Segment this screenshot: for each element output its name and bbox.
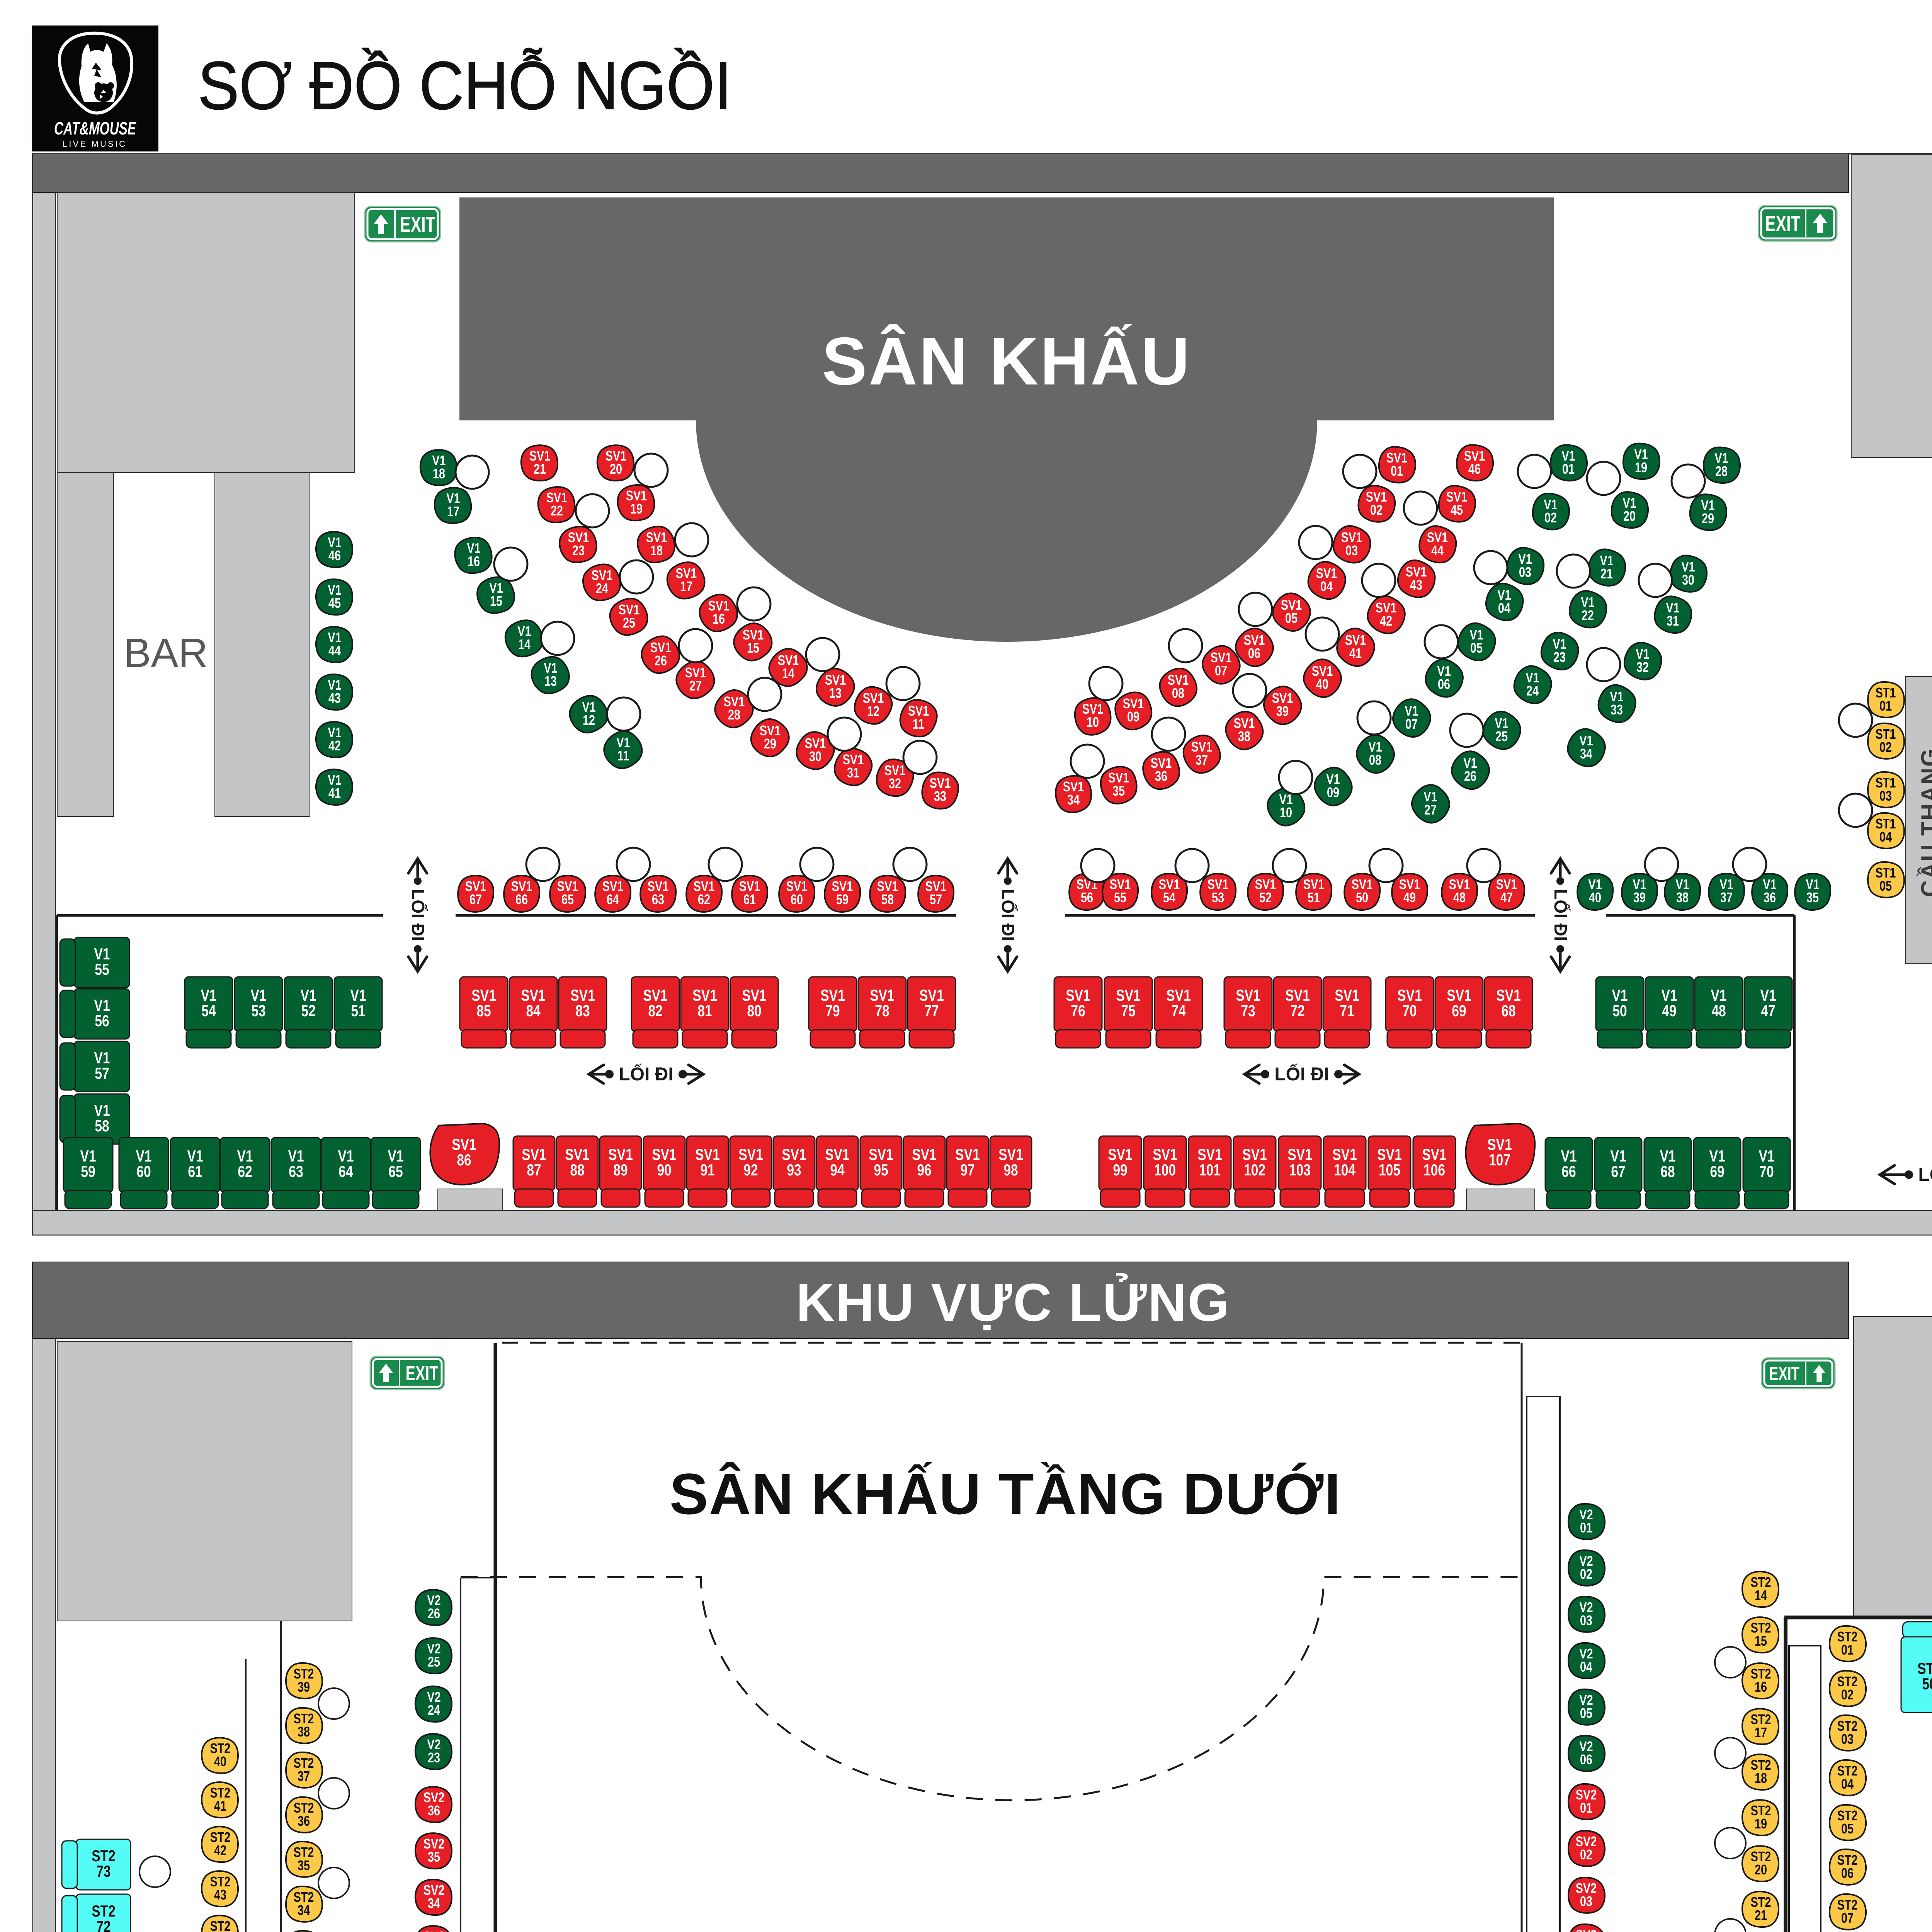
svg-text:V104: V104 — [1497, 587, 1511, 616]
svg-text:V147: V147 — [1760, 987, 1776, 1020]
svg-text:CẦU THANG: CẦU THANG — [1917, 748, 1932, 897]
svg-text:V155: V155 — [94, 946, 110, 979]
svg-text:V202: V202 — [1579, 1553, 1593, 1582]
svg-text:CAT&MOUSE: CAT&MOUSE — [54, 118, 136, 138]
svg-text:V144: V144 — [328, 629, 341, 658]
svg-text:SV1104: SV1104 — [1332, 1146, 1357, 1179]
svg-text:V157: V157 — [94, 1049, 110, 1083]
svg-text:V139: V139 — [1633, 876, 1646, 905]
svg-text:V223: V223 — [427, 1736, 440, 1765]
svg-text:ST244: ST244 — [210, 1918, 231, 1932]
svg-text:V160: V160 — [136, 1148, 151, 1181]
svg-text:SÂN KHẤU: SÂN KHẤU — [822, 324, 1191, 399]
svg-text:V134: V134 — [1579, 733, 1593, 762]
svg-text:V106: V106 — [1437, 663, 1451, 692]
svg-text:V137: V137 — [1719, 876, 1733, 905]
svg-text:SV1107: SV1107 — [1487, 1136, 1512, 1169]
svg-text:V141: V141 — [328, 772, 341, 801]
svg-text:V129: V129 — [1701, 497, 1714, 526]
svg-text:SV233: SV233 — [423, 1929, 444, 1932]
svg-text:V159: V159 — [80, 1148, 96, 1181]
svg-text:V103: V103 — [1518, 551, 1532, 580]
svg-text:V203: V203 — [1579, 1599, 1593, 1628]
svg-text:SV1105: SV1105 — [1377, 1146, 1401, 1179]
svg-text:V201: V201 — [1579, 1507, 1593, 1536]
svg-text:LIVE MUSIC: LIVE MUSIC — [63, 139, 129, 149]
svg-text:V145: V145 — [328, 582, 341, 611]
svg-text:V158: V158 — [94, 1102, 110, 1135]
svg-text:SV1102: SV1102 — [1242, 1146, 1267, 1179]
svg-text:V164: V164 — [338, 1148, 354, 1181]
svg-text:SV1106: SV1106 — [1422, 1146, 1446, 1179]
svg-text:EXIT: EXIT — [406, 1362, 439, 1385]
svg-text:V115: V115 — [489, 580, 503, 609]
svg-text:V133: V133 — [1610, 689, 1623, 718]
svg-text:V108: V108 — [1368, 739, 1382, 768]
svg-text:V130: V130 — [1681, 559, 1695, 588]
svg-text:V111: V111 — [616, 735, 630, 764]
svg-text:V125: V125 — [1495, 715, 1508, 744]
svg-text:V105: V105 — [1469, 627, 1483, 656]
svg-text:KHU VỰC LỬNG: KHU VỰC LỬNG — [796, 1273, 1230, 1332]
svg-text:V132: V132 — [1636, 646, 1649, 675]
svg-text:V143: V143 — [328, 677, 341, 706]
svg-text:V151: V151 — [350, 987, 366, 1020]
svg-text:V116: V116 — [467, 540, 480, 569]
svg-text:SV1103: SV1103 — [1287, 1146, 1312, 1179]
svg-text:V122: V122 — [1581, 594, 1594, 623]
svg-text:V154: V154 — [201, 987, 216, 1020]
svg-text:V224: V224 — [427, 1689, 440, 1718]
svg-text:LỐI ĐI: LỐI ĐI — [408, 889, 428, 941]
svg-text:V135: V135 — [1806, 876, 1819, 905]
svg-text:SV1101: SV1101 — [1197, 1146, 1222, 1179]
svg-text:LỐI ĐI: LỐI ĐI — [1918, 1164, 1932, 1185]
svg-text:SV1100: SV1100 — [1153, 1146, 1177, 1179]
svg-text:SÂN KHẤU TẦNG DƯỚI: SÂN KHẤU TẦNG DƯỚI — [670, 1461, 1341, 1526]
svg-text:V113: V113 — [544, 660, 557, 689]
svg-text:V123: V123 — [1553, 636, 1566, 665]
svg-text:V165: V165 — [388, 1148, 403, 1181]
svg-text:V131: V131 — [1666, 600, 1679, 629]
svg-text:V114: V114 — [517, 623, 531, 652]
svg-text:SƠ ĐỒ CHỖ NGỒI: SƠ ĐỒ CHỖ NGỒI — [198, 48, 732, 124]
svg-text:LỐI ĐI: LỐI ĐI — [998, 889, 1018, 941]
svg-text:EXIT: EXIT — [400, 212, 435, 237]
svg-text:V119: V119 — [1634, 446, 1648, 475]
svg-text:V138: V138 — [1675, 876, 1689, 905]
svg-text:LỐI ĐI: LỐI ĐI — [619, 1063, 673, 1085]
svg-text:V225: V225 — [427, 1641, 440, 1670]
svg-text:V162: V162 — [237, 1148, 253, 1181]
svg-text:V127: V127 — [1423, 789, 1437, 818]
svg-text:V148: V148 — [1711, 987, 1726, 1020]
svg-text:V126: V126 — [1463, 755, 1477, 784]
svg-text:LỐI ĐI: LỐI ĐI — [1551, 889, 1571, 941]
svg-text:V163: V163 — [288, 1148, 304, 1181]
svg-text:LỐI ĐI: LỐI ĐI — [1274, 1063, 1329, 1085]
svg-text:V169: V169 — [1709, 1148, 1725, 1181]
svg-text:V128: V128 — [1714, 450, 1728, 479]
svg-text:V109: V109 — [1326, 771, 1340, 800]
svg-text:V156: V156 — [94, 997, 110, 1030]
svg-text:EXIT: EXIT — [1765, 211, 1800, 236]
svg-text:V167: V167 — [1610, 1148, 1626, 1181]
svg-text:V118: V118 — [432, 452, 446, 481]
svg-text:V149: V149 — [1661, 987, 1677, 1020]
svg-text:V152: V152 — [300, 987, 316, 1020]
svg-text:V107: V107 — [1405, 703, 1418, 732]
svg-text:SV204: SV204 — [1576, 1927, 1597, 1932]
svg-text:V204: V204 — [1579, 1646, 1593, 1675]
svg-text:V121: V121 — [1600, 553, 1613, 582]
svg-text:V205: V205 — [1579, 1692, 1593, 1721]
svg-text:V206: V206 — [1579, 1738, 1593, 1767]
svg-text:V161: V161 — [187, 1148, 203, 1181]
svg-text:V168: V168 — [1660, 1148, 1675, 1181]
svg-text:V142: V142 — [328, 724, 341, 753]
svg-text:V146: V146 — [328, 534, 341, 563]
svg-text:V117: V117 — [446, 490, 460, 519]
svg-text:V124: V124 — [1526, 670, 1539, 699]
svg-text:V120: V120 — [1622, 495, 1636, 524]
svg-text:V110: V110 — [1279, 791, 1293, 820]
svg-text:V140: V140 — [1588, 876, 1602, 905]
svg-text:BAR: BAR — [124, 630, 208, 676]
svg-text:V112: V112 — [582, 699, 595, 728]
svg-text:V102: V102 — [1544, 497, 1557, 526]
svg-text:EXIT: EXIT — [1769, 1363, 1799, 1384]
svg-text:V170: V170 — [1759, 1148, 1774, 1181]
svg-text:V101: V101 — [1561, 448, 1575, 477]
svg-text:V226: V226 — [427, 1592, 440, 1621]
svg-text:V153: V153 — [250, 987, 266, 1020]
svg-text:V136: V136 — [1763, 876, 1776, 905]
svg-text:V150: V150 — [1612, 987, 1628, 1020]
svg-text:V166: V166 — [1561, 1148, 1577, 1181]
